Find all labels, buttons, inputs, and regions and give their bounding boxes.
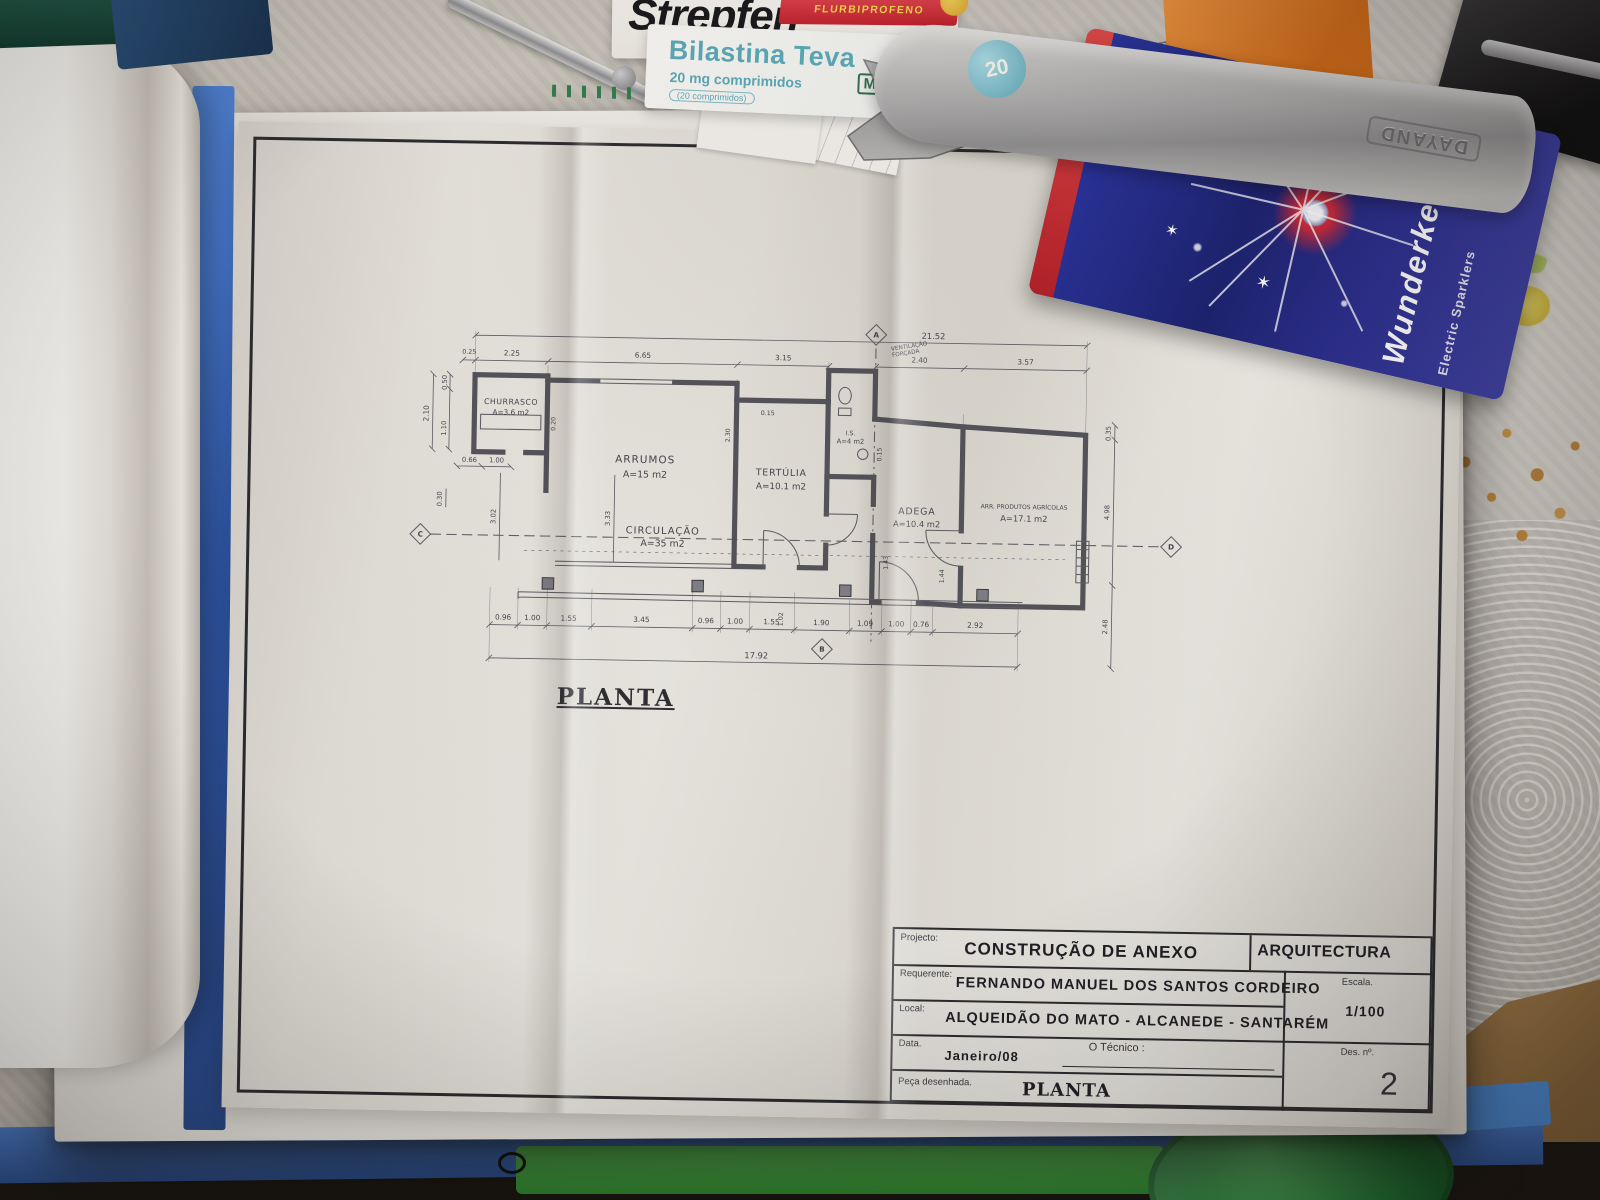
svg-text:TERTÚLIA: TERTÚLIA [755,466,807,479]
svg-text:ARR. PRODUTOS AGRÍCOLAS: ARR. PRODUTOS AGRÍCOLAS [981,501,1068,512]
svg-text:4.98: 4.98 [1103,505,1111,520]
svg-text:0.66: 0.66 [462,456,477,464]
divider [894,964,1430,975]
svg-text:C: C [418,529,424,538]
title-block: Projecto: CONSTRUÇÃO DE ANEXO ARQUITECTU… [890,927,1433,1111]
des-label: Des. nº. [1341,1047,1375,1059]
svg-text:A=3.6 m2: A=3.6 m2 [492,407,529,417]
des-number: 2 [1380,1065,1398,1102]
svg-text:A=10.1 m2: A=10.1 m2 [756,482,806,493]
marker-b-icon: B [811,639,832,660]
svg-text:1.10: 1.10 [440,421,448,436]
svg-text:6.65: 6.65 [635,351,651,360]
svg-text:1.02: 1.02 [778,612,785,626]
floor-plan: 21.52 0.25 2.25 6.65 3.15 2.40 3.57 0.96… [397,312,1235,702]
svg-text:0.96: 0.96 [495,612,512,621]
svg-text:B: B [819,645,825,654]
requerente-value: FERNANDO MANUEL DOS SANTOS CORDEIRO [956,975,1321,997]
escala-label: Escala. [1342,977,1373,989]
svg-text:A=17.1 m2: A=17.1 m2 [1000,513,1047,524]
divider [1249,935,1252,970]
divider [893,1034,1433,1045]
svg-text:0.15: 0.15 [761,410,775,417]
wire-ring [498,1152,526,1174]
svg-text:17.92: 17.92 [744,650,768,660]
svg-text:2.25: 2.25 [504,348,520,357]
svg-text:0.96: 0.96 [698,616,715,625]
svg-text:0.25: 0.25 [462,349,476,356]
svg-text:0.35: 0.35 [1105,426,1113,441]
svg-text:2.30: 2.30 [725,428,732,442]
local-value: ALQUEIDÃO DO MATO - ALCANEDE - SANTARÉM [945,1010,1329,1033]
svg-text:2.92: 2.92 [967,621,983,630]
discipline-value: ARQUITECTURA [1257,942,1391,962]
svg-text:D: D [1168,543,1174,552]
svg-text:2.10: 2.10 [422,405,431,422]
svg-text:CHURRASCO: CHURRASCO [484,397,538,407]
svg-text:3.15: 3.15 [775,353,791,362]
clip-metal-arm [1480,38,1600,85]
svg-text:1.90: 1.90 [813,618,830,627]
bilastina-dose-text: 20 mg comprimidos [669,69,802,91]
svg-text:A=15 m2: A=15 m2 [623,469,667,481]
svg-text:1.44: 1.44 [939,569,946,583]
handle-brand-embossed: DAYAND [1366,115,1483,162]
curled-paper-sheet [0,22,200,1068]
tecnico-label: O Técnico : [1089,1041,1145,1054]
green-binder-strip [516,1146,1164,1194]
bilastina-count-text: (20 comprimidos) [669,89,755,105]
divider [893,999,1283,1008]
svg-text:0.30: 0.30 [436,491,444,506]
svg-text:I.S.: I.S. [846,430,856,437]
svg-text:2.48: 2.48 [1101,619,1109,634]
projecto-value: CONSTRUÇÃO DE ANEXO [964,939,1198,963]
svg-text:ARRUMOS: ARRUMOS [615,453,675,466]
tecnico-signature-line [1062,1066,1274,1071]
peca-value: PLANTA [1022,1079,1111,1102]
svg-text:1.00: 1.00 [489,456,504,464]
data-value: Janeiro/08 [944,1048,1019,1064]
svg-text:CIRCULAÇÃO: CIRCULAÇÃO [626,523,700,537]
marker-c-icon: C [410,523,431,544]
svg-text:3.57: 3.57 [1017,357,1033,366]
svg-text:A=35 m2: A=35 m2 [640,538,684,550]
svg-text:0.50: 0.50 [441,375,449,390]
svg-text:3.02: 3.02 [489,509,497,524]
svg-text:3.45: 3.45 [633,615,649,624]
marker-d-icon: D [1161,537,1182,558]
bilastina-brand-text: Bilastina Teva [668,35,856,74]
escala-value: 1/100 [1345,1003,1385,1020]
photo-of-floor-plan: 21.52 0.25 2.25 6.65 3.15 2.40 3.57 0.96… [0,0,1600,1200]
svg-text:1.00: 1.00 [727,616,744,625]
